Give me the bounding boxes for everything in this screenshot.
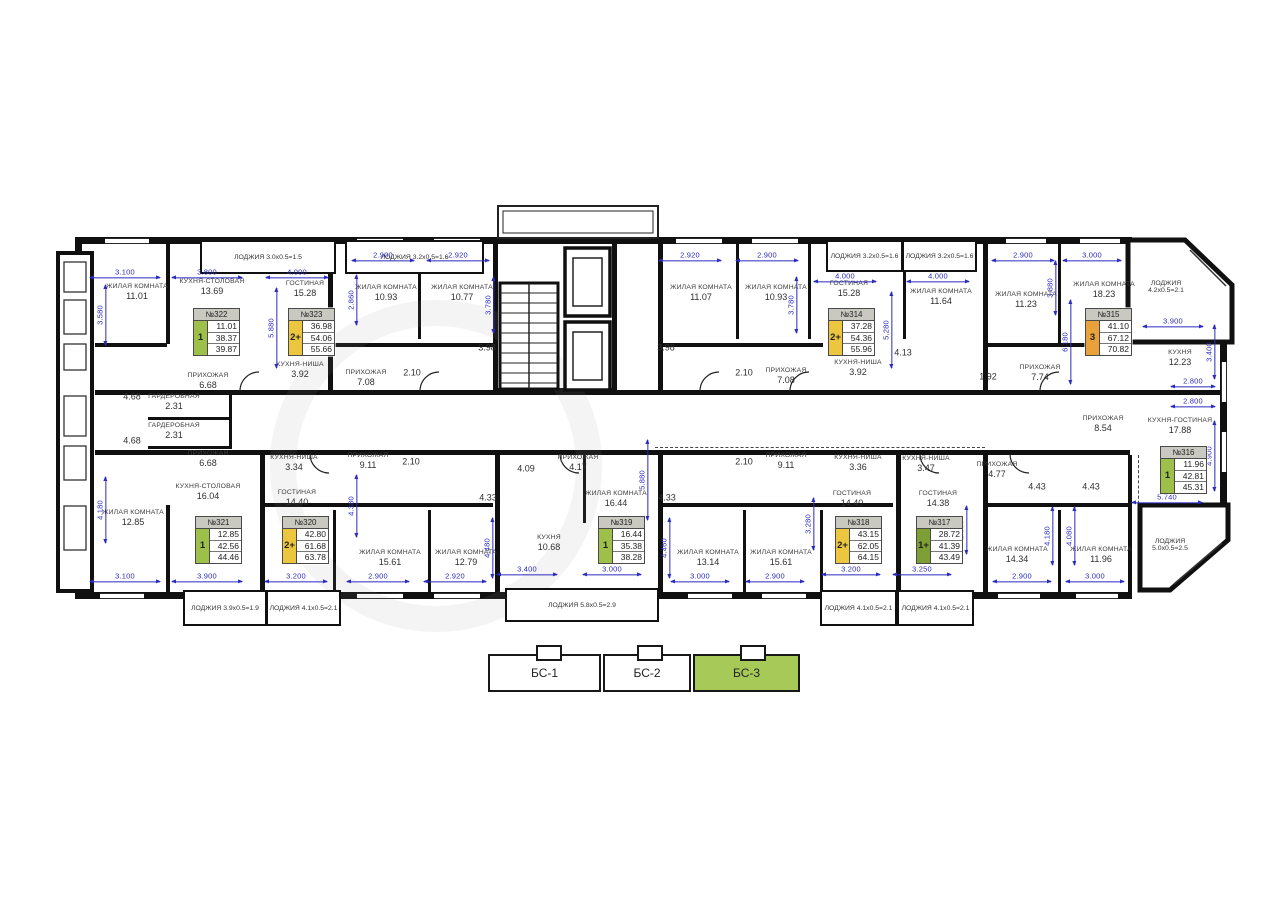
dimension-label: 4.380 [346, 475, 357, 537]
wall [1058, 510, 1061, 595]
floorplan-page: ЛОДЖИЯ 3.0x0.5=1.5ЛОДЖИЯ 3.2x0.5=1.6ЛОДЖ… [0, 0, 1280, 904]
apartment-card-320: №3202+42.8061.6863.78 [282, 516, 329, 564]
room-label: 4.33 [479, 492, 497, 503]
apartment-number: №314 [829, 309, 874, 321]
apartment-area-value: 62.05 [850, 541, 881, 553]
dashed-partition [655, 447, 985, 448]
wall [1128, 455, 1132, 592]
apartment-number: №319 [599, 517, 644, 529]
room-label: 3.98 [478, 342, 496, 353]
dimension-label: 2.800 [1171, 376, 1215, 387]
room-label: ПРИХОЖАЯ7.08 [765, 367, 806, 385]
apartment-area-value: 12.85 [210, 529, 241, 541]
dimension-label: 2.860 [346, 275, 357, 325]
apartment-number: №318 [836, 517, 881, 529]
dimension-label: 3.250 [893, 564, 951, 575]
wall [612, 244, 617, 394]
window [676, 238, 722, 244]
room-label: 4.43 [1082, 481, 1100, 492]
window [998, 593, 1040, 599]
room-label: КУХНЯ-НИША3.92 [276, 361, 324, 379]
room-label: 2.10 [735, 367, 753, 378]
room-label: ПРИХОЖАЯ9.11 [765, 452, 806, 470]
dimension-label: 3.400 [497, 564, 557, 575]
room-label: ЖИЛАЯ КОМНАТА11.64 [910, 288, 972, 306]
dimension-label: 3.280 [803, 498, 814, 550]
window [1080, 238, 1120, 244]
dimension-label: 2.900 [347, 571, 409, 582]
apartment-number: №320 [283, 517, 328, 529]
apartment-type-badge: 3 [1086, 321, 1100, 355]
room-label: 4.33 [658, 492, 676, 503]
room-label: ЖИЛАЯ КОМНАТА11.96 [1070, 546, 1132, 564]
room-label: КУХНЯ-СТОЛОВАЯ16.04 [175, 483, 240, 501]
window [752, 238, 798, 244]
wall [988, 343, 1088, 347]
room-label: КУХНЯ-НИША3.34 [270, 454, 318, 472]
dimension-label: 2.900 [992, 250, 1054, 261]
dashed-partition [1138, 455, 1139, 590]
wall [95, 450, 1130, 455]
window [100, 593, 144, 599]
room-label: 3.98 [657, 342, 675, 353]
room-label: ПРИХОЖАЯ6.68 [187, 372, 228, 390]
room-label: 1.92 [979, 371, 997, 382]
dimension-label: 5.280 [881, 292, 892, 368]
loggia: ЛОДЖИЯ 4.1x0.5=2.1 [820, 590, 897, 626]
room-label: ПРИХОЖАЯ4.77 [976, 461, 1017, 479]
floor-plan: ЛОДЖИЯ 3.0x0.5=1.5ЛОДЖИЯ 3.2x0.5=1.6ЛОДЖ… [0, 0, 1280, 904]
room-label: ЖИЛАЯ КОМНАТА14.34 [986, 546, 1048, 564]
room-label: ГОСТИНАЯ15.28 [830, 280, 868, 298]
wall [820, 510, 823, 595]
wall [988, 503, 1130, 507]
apartment-area-value: 36.98 [303, 321, 334, 333]
apartment-card-316: №316111.9642.8145.31 [1160, 446, 1207, 494]
apartment-area-value: 54.36 [843, 333, 874, 345]
room-label: ГОСТИНАЯ15.28 [286, 280, 324, 298]
apartment-number: №321 [196, 517, 241, 529]
apartment-area-value: 38.28 [613, 552, 644, 563]
apartment-area-value: 39.87 [208, 344, 239, 355]
apartment-area-value: 11.01 [208, 321, 239, 333]
window [1076, 593, 1118, 599]
apartment-area-value: 11.96 [1175, 459, 1206, 471]
dimension-label: 3.000 [583, 564, 641, 575]
apartment-area-value: 64.15 [850, 552, 881, 563]
apartment-type-badge: 1 [196, 529, 210, 563]
dimension-label: 3.780 [483, 277, 494, 333]
dimension-label: 2.920 [424, 571, 486, 582]
apartment-area-value: 67.12 [1100, 333, 1131, 345]
room-label: ГАРДЕРОБНАЯ2.31 [148, 422, 200, 440]
section-key-bump [637, 645, 663, 661]
apartment-card-319: №319116.4435.3838.28 [598, 516, 645, 564]
apartment-area-value: 43.15 [850, 529, 881, 541]
apartment-card-317: №3171+28.7241.3943.49 [916, 516, 963, 564]
apartment-area-value: 45.31 [1175, 482, 1206, 493]
dimension-label: 3.900 [172, 571, 242, 582]
dimension-label: 4.180 [95, 477, 106, 543]
wall [663, 343, 823, 347]
apartment-number: №316 [1161, 447, 1206, 459]
window [105, 238, 149, 244]
room-label: ПРИХОЖАЯ7.74 [1019, 364, 1060, 382]
apartment-type-badge: 2+ [283, 529, 297, 563]
room-label: ЖИЛАЯ КОМНАТА11.07 [670, 284, 732, 302]
loggia-label: ЛОДЖИЯ5.0x0.5=2.5 [1152, 538, 1188, 552]
section-key-bump [740, 645, 766, 661]
apartment-area-value: 61.68 [297, 541, 328, 553]
room-label: ПРИХОЖАЯ4.17 [557, 454, 598, 472]
dimension-label: 3.800 [172, 267, 242, 278]
dimension-label: 2.920 [659, 250, 721, 261]
window [688, 593, 732, 599]
apartment-area-value: 41.10 [1100, 321, 1131, 333]
apartment-area-value: 28.72 [931, 529, 962, 541]
apartment-area-value: 42.56 [210, 541, 241, 553]
wall [166, 505, 170, 592]
dimension-label: 3.100 [90, 571, 160, 582]
room-label: 4.68 [123, 391, 141, 402]
apartment-type-badge: 1 [599, 529, 613, 563]
dimension-label: 3.000 [671, 571, 729, 582]
apartment-type-badge: 1 [194, 321, 208, 355]
room-label: 2.10 [402, 456, 420, 467]
dimension-label: 5.880 [637, 440, 648, 520]
apartment-area-value: 63.78 [297, 552, 328, 563]
apartment-area-value: 35.38 [613, 541, 644, 553]
section-key-bump [536, 645, 562, 661]
room-label: КУХНЯ10.68 [537, 534, 561, 552]
loggia: ЛОДЖИЯ 4.1x0.5=2.1 [897, 590, 974, 626]
wall [148, 417, 232, 420]
room-label: ГОСТИНАЯ14.40 [278, 489, 316, 507]
room-label: ПРИХОЖАЯ6.68 [187, 450, 228, 468]
apartment-area-value: 43.49 [931, 552, 962, 563]
dimension-label: 2.900 [736, 250, 798, 261]
dimension-label: 3.200 [265, 571, 327, 582]
loggia-label: ЛОДЖИЯ4.2x0.5=2.1 [1148, 280, 1184, 294]
apartment-card-322: №322111.0138.3739.87 [193, 308, 240, 356]
loggia: ЛОДЖИЯ 5.8x0.5=2.9 [505, 588, 659, 622]
room-label: 4.43 [1028, 481, 1046, 492]
apartment-area-value: 54.06 [303, 333, 334, 345]
dimension-label: 2.900 [993, 571, 1051, 582]
apartment-area-value: 37.28 [843, 321, 874, 333]
dimension-label: 2.800 [1171, 396, 1215, 407]
room-label: КУХНЯ-НИША3.47 [902, 455, 950, 473]
apartment-card-321: №321112.8542.5644.46 [195, 516, 242, 564]
window [1221, 432, 1227, 472]
dimension-label: 3.000 [1066, 571, 1124, 582]
apartment-area-value: 44.46 [210, 552, 241, 563]
wall [658, 244, 663, 395]
dimension-label: 3.400 [1204, 325, 1215, 379]
apartment-area-value: 41.39 [931, 541, 962, 553]
dimension-label: 3.900 [1143, 316, 1203, 327]
apartment-number: №322 [194, 309, 239, 321]
apartment-card-315: №315341.1067.1270.82 [1085, 308, 1132, 356]
room-label: КУХНЯ12.23 [1168, 349, 1192, 367]
loggia: ЛОДЖИЯ 4.1x0.5=2.1 [266, 590, 341, 626]
room-label: ПРИХОЖАЯ8.54 [1082, 415, 1123, 433]
dimension-label: 3.200 [822, 564, 880, 575]
apartment-area-value: 16.44 [613, 529, 644, 541]
wall [95, 390, 1133, 395]
room-label: ГОСТИНАЯ14.40 [833, 490, 871, 508]
dimension-label: 3.780 [786, 277, 797, 333]
apartment-type-badge: 2+ [836, 529, 850, 563]
dimension-label: 4.480 [482, 518, 493, 578]
room-label: ПРИХОЖАЯ7.08 [345, 369, 386, 387]
loggia: ЛОДЖИЯ 3.2x0.5=1.6 [826, 240, 903, 272]
room-label: 4.13 [894, 347, 912, 358]
apartment-number: №317 [917, 517, 962, 529]
room-label: ГАРДЕРОБНАЯ2.31 [148, 393, 200, 411]
dimension-label: 3.880 [1045, 261, 1056, 315]
window [1221, 362, 1227, 402]
room-label: КУХНЯ-СТОЛОВАЯ13.69 [179, 278, 244, 296]
room-label: КУХНЯ-НИША3.92 [834, 359, 882, 377]
apartment-number: №315 [1086, 309, 1131, 321]
apartment-type-badge: 2+ [289, 321, 303, 355]
wall [148, 446, 232, 449]
dimension-label: 3.000 [1063, 250, 1121, 261]
window [1006, 238, 1046, 244]
apartment-type-badge: 2+ [829, 321, 843, 355]
room-label: ЖИЛАЯ КОМНАТА13.14 [677, 549, 739, 567]
room-label: ГОСТИНАЯ14.38 [919, 490, 957, 508]
room-label: 4.09 [517, 463, 535, 474]
dimension-label: 4.180 [1042, 507, 1053, 565]
apartment-area-value: 42.80 [297, 529, 328, 541]
room-label: 2.10 [735, 456, 753, 467]
window [762, 593, 806, 599]
room-label: ПРИХОЖАЯ9.11 [347, 452, 388, 470]
dimension-label: 4.000 [814, 271, 876, 282]
apartment-area-value: 70.82 [1100, 344, 1131, 355]
room-label: ЖИЛАЯ КОМНАТА12.85 [102, 509, 164, 527]
loggia: ЛОДЖИЯ 3.9x0.5=1.9 [183, 590, 267, 626]
dimension-label: 4.460 [659, 518, 670, 578]
apartment-card-318: №3182+43.1562.0564.15 [835, 516, 882, 564]
apartment-number: №323 [289, 309, 334, 321]
apartment-card-314: №3142+37.2854.3655.96 [828, 308, 875, 356]
dimension-label: 2.900 [352, 250, 414, 261]
wall [229, 390, 232, 449]
wall [808, 244, 811, 339]
apartment-card-323: №3232+36.9854.0655.66 [288, 308, 335, 356]
dimension-label: 4.080 [1064, 507, 1075, 565]
dimension-label: 3.580 [95, 285, 106, 345]
room-label: ЖИЛАЯ КОМНАТА15.61 [750, 549, 812, 567]
dimension-label: 2.920 [427, 250, 489, 261]
apartment-area-value: 55.66 [303, 344, 334, 355]
dimension-label: 3.100 [90, 267, 160, 278]
apartment-type-badge: 1+ [917, 529, 931, 563]
apartment-type-badge: 1 [1161, 459, 1175, 493]
apartment-area-value: 42.81 [1175, 471, 1206, 483]
room-label: ЖИЛАЯ КОМНАТА11.01 [106, 283, 168, 301]
room-label: 4.68 [123, 435, 141, 446]
apartment-area-value: 55.96 [843, 344, 874, 355]
room-label: КУХНЯ-ГОСТИНАЯ17.88 [1148, 417, 1212, 435]
room-label: КУХНЯ-НИША3.36 [834, 454, 882, 472]
room-label: ЖИЛАЯ КОМНАТА10.93 [355, 284, 417, 302]
loggia: ЛОДЖИЯ 3.2x0.5=1.6 [902, 240, 977, 272]
room-label: 2.10 [403, 367, 421, 378]
room-label: ЖИЛАЯ КОМНАТА18.23 [1073, 281, 1135, 299]
wall [75, 237, 82, 599]
dimension-label: 5.740 [1132, 492, 1202, 503]
room-label: ЖИЛАЯ КОМНАТА15.61 [359, 549, 421, 567]
dimension-label: 2.900 [746, 571, 804, 582]
dimension-label: 4.000 [907, 271, 969, 282]
dimension-label: 6.180 [1060, 300, 1071, 384]
apartment-area-value: 38.37 [208, 333, 239, 345]
wall [1130, 390, 1222, 395]
dimension-label: 5.880 [266, 288, 277, 368]
dimension-label: 4.000 [266, 267, 328, 278]
